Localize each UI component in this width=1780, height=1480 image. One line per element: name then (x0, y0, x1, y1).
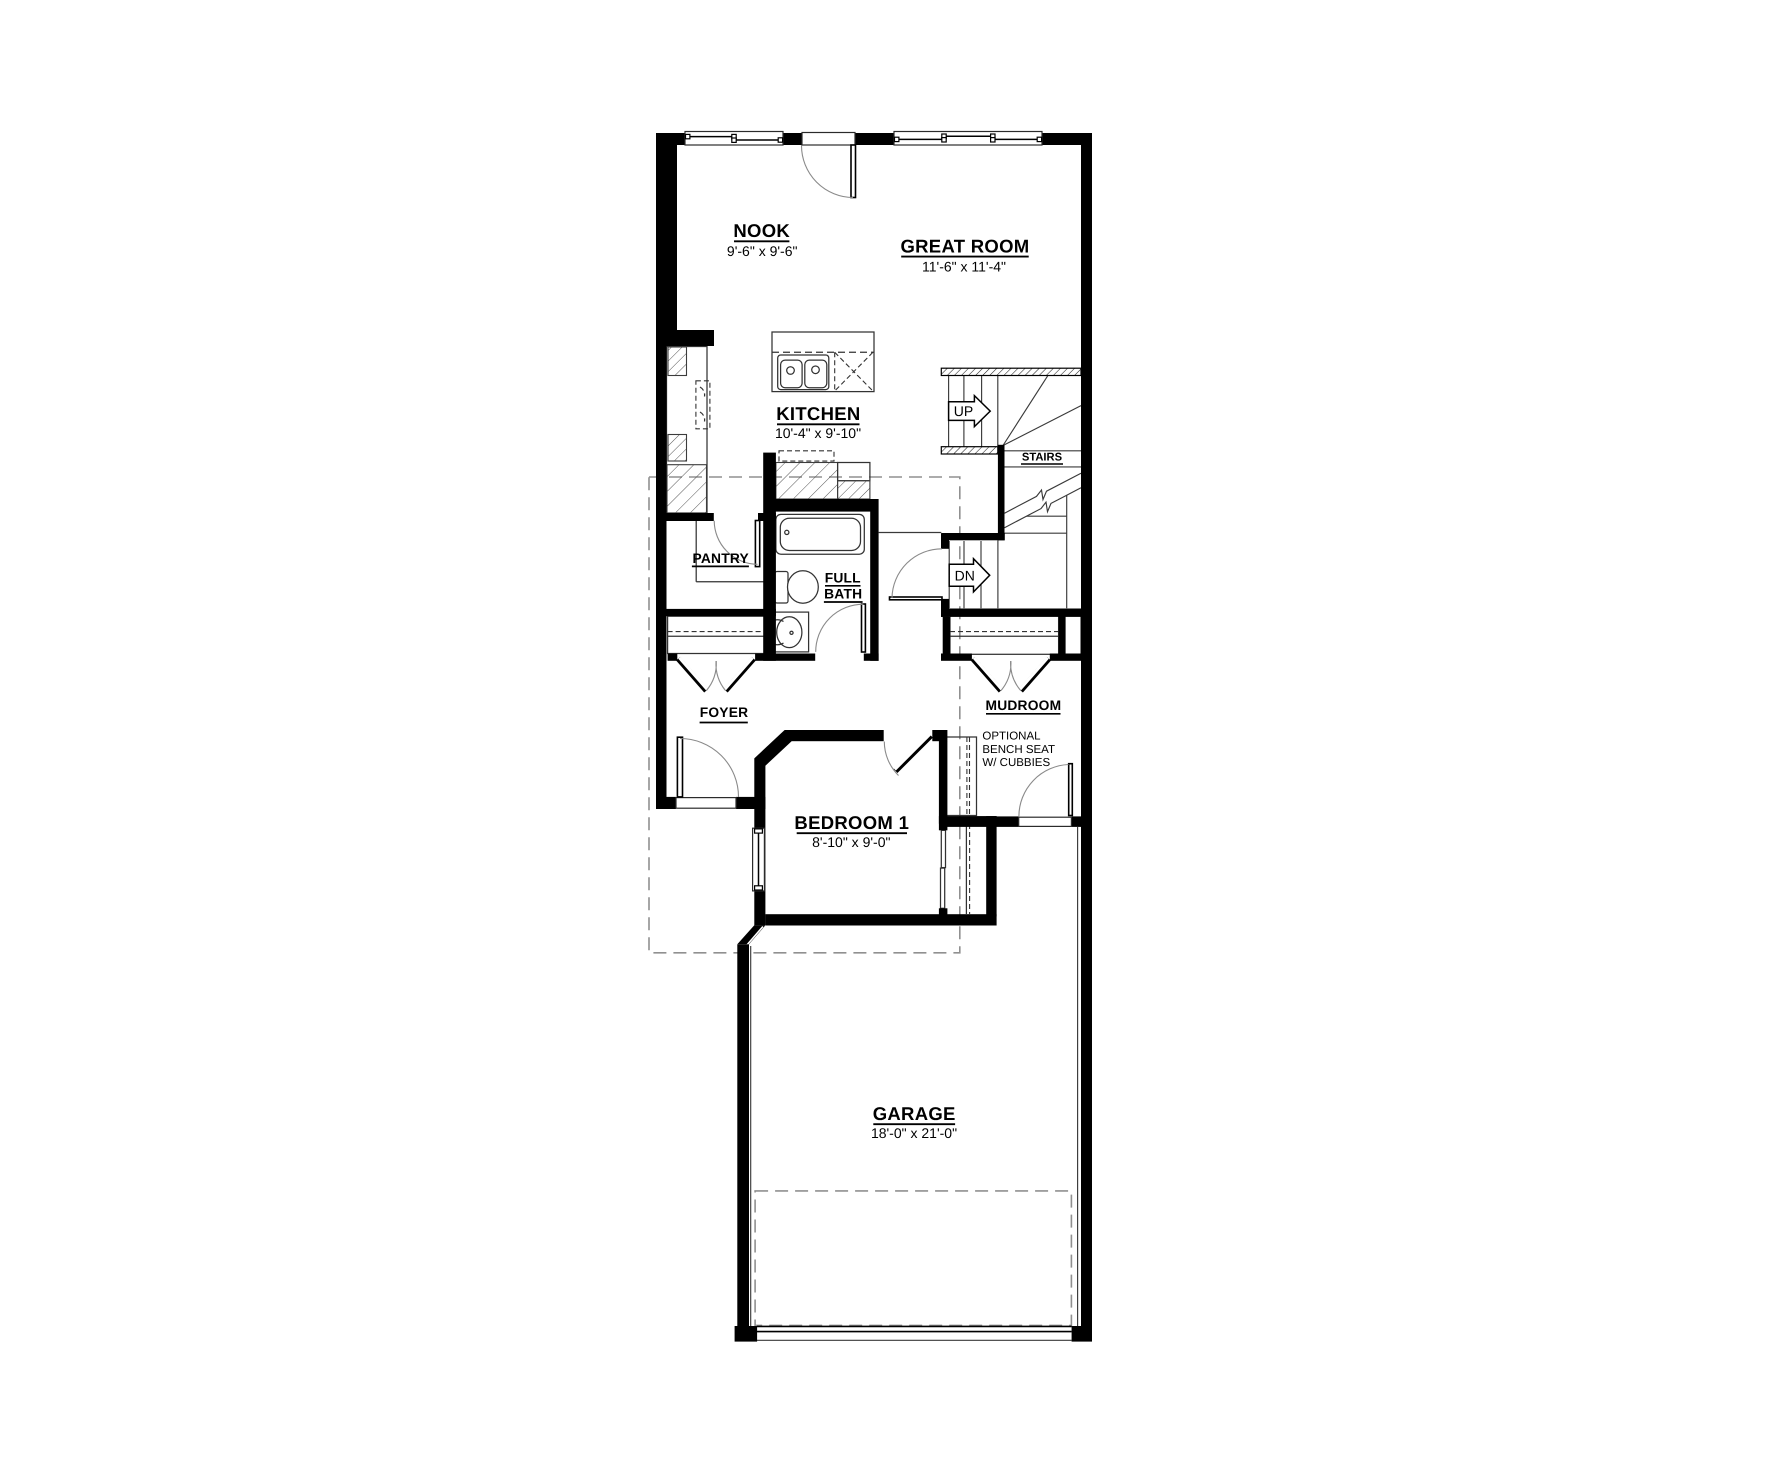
svg-text:NOOK: NOOK (733, 220, 790, 241)
svg-text:18'-0" x 21'-0": 18'-0" x 21'-0" (871, 1125, 957, 1141)
svg-text:BEDROOM 1: BEDROOM 1 (794, 812, 909, 833)
svg-text:KITCHEN: KITCHEN (776, 403, 860, 424)
svg-text:UP: UP (954, 403, 973, 419)
svg-text:9'-6" x 9'-6": 9'-6" x 9'-6" (727, 243, 798, 259)
svg-text:OPTIONAL: OPTIONAL (982, 731, 1041, 743)
svg-text:W/ CUBBIES: W/ CUBBIES (982, 757, 1050, 769)
svg-text:10'-4" x 9'-10": 10'-4" x 9'-10" (775, 425, 861, 441)
svg-text:MUDROOM: MUDROOM (986, 698, 1062, 713)
svg-text:8'-10" x 9'-0": 8'-10" x 9'-0" (812, 834, 890, 850)
svg-text:GREAT ROOM: GREAT ROOM (900, 235, 1029, 256)
svg-text:STAIRS: STAIRS (1022, 451, 1063, 463)
svg-text:DN: DN (955, 567, 975, 583)
svg-text:GARAGE: GARAGE (873, 1103, 956, 1124)
svg-text:BENCH SEAT: BENCH SEAT (982, 744, 1055, 756)
svg-text:11'-6" x 11'-4": 11'-6" x 11'-4" (922, 258, 1006, 274)
svg-text:PANTRY: PANTRY (693, 551, 749, 566)
svg-text:FOYER: FOYER (700, 705, 749, 720)
svg-text:FULL: FULL (825, 570, 861, 585)
svg-text:BATH: BATH (824, 587, 862, 602)
